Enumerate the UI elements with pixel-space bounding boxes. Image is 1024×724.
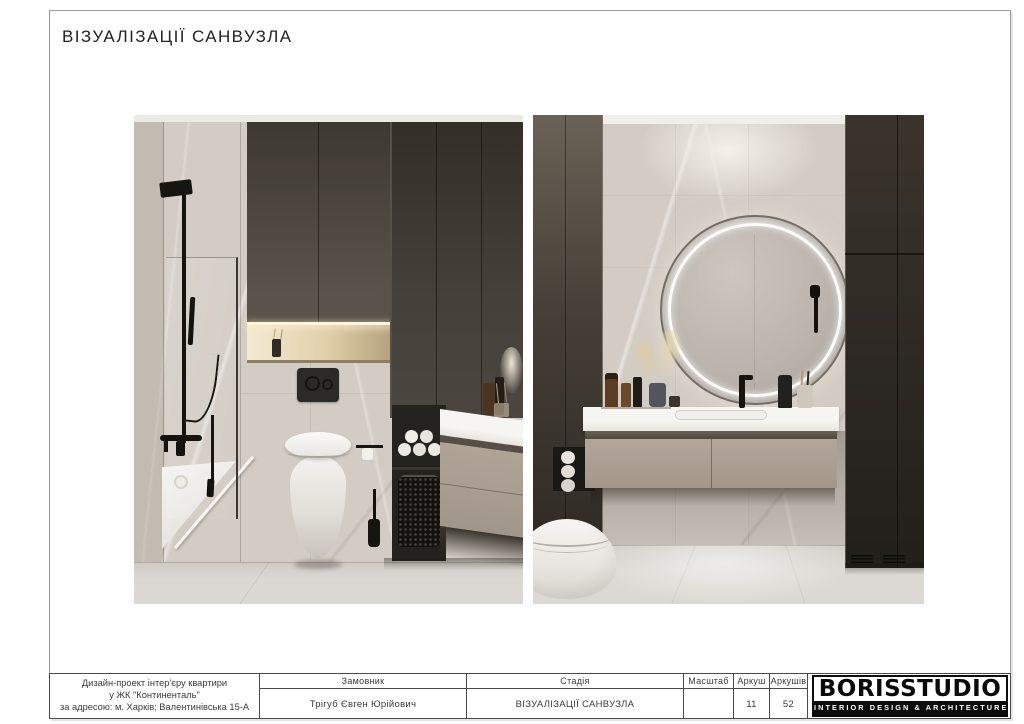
project-description-cell: Дизайн-проект інтер'єру квартири у ЖК "К… bbox=[50, 674, 259, 718]
shower-handle bbox=[207, 479, 215, 497]
studio-logo: BORISSTUDIO INTERIOR DESIGN & ARCHITECTU… bbox=[812, 675, 1008, 717]
wall-hung-toilet bbox=[285, 432, 351, 572]
stage-label: Стадія bbox=[467, 674, 683, 689]
dark-bottle bbox=[778, 375, 792, 408]
project-line-2: у ЖК "Континенталь" bbox=[109, 690, 200, 702]
mirror-reflection-shower bbox=[814, 295, 818, 333]
cabinet-door-seam bbox=[436, 122, 437, 418]
amber-bottle bbox=[605, 373, 618, 408]
scale-label: Масштаб bbox=[684, 674, 733, 689]
toilet-brush-cup bbox=[368, 519, 380, 547]
vent-grille bbox=[851, 555, 873, 563]
tray bbox=[601, 407, 671, 409]
stage-cell: Стадія ВІЗУАЛІЗАЦІЇ САНВУЗЛА bbox=[466, 674, 683, 718]
round-mirror bbox=[660, 215, 850, 405]
vanity bbox=[440, 409, 523, 573]
sheets-total-cell: Аркушів 52 bbox=[769, 674, 807, 718]
scale-cell: Масштаб bbox=[683, 674, 733, 718]
mixer-spout bbox=[164, 441, 168, 452]
bathroom-render-right bbox=[533, 115, 924, 604]
pump-bottle bbox=[633, 377, 642, 408]
toilet-shadow bbox=[294, 560, 342, 569]
sheet-value: 11 bbox=[734, 690, 769, 718]
diffuser-sticks bbox=[496, 383, 507, 404]
tile-joint bbox=[240, 122, 241, 562]
mixer-knob bbox=[176, 441, 185, 456]
vanity-shadow bbox=[591, 488, 835, 506]
floor-light-pool bbox=[593, 545, 853, 604]
tile-joint bbox=[603, 195, 845, 196]
toilet bbox=[533, 511, 617, 603]
client-cell: Замовник Трігуб Євген Юрійович bbox=[259, 674, 466, 718]
client-value: Трігуб Євген Юрійович bbox=[260, 690, 466, 718]
toilet-brush bbox=[373, 489, 376, 521]
sheets-label: Аркушів bbox=[770, 674, 807, 689]
diffuser-jar bbox=[494, 403, 509, 417]
cabinet-door-seam bbox=[318, 122, 319, 322]
flush-button bbox=[305, 376, 320, 391]
vase bbox=[649, 383, 666, 407]
storage-basket bbox=[398, 477, 440, 547]
shelf-divider bbox=[392, 467, 446, 470]
shower-hose bbox=[211, 415, 214, 485]
niche-shelf bbox=[247, 360, 392, 363]
drawer-seam bbox=[711, 439, 712, 488]
ceiling bbox=[134, 115, 523, 122]
sink-basin bbox=[675, 410, 767, 420]
title-block-table: Дизайн-проект інтер'єру квартири у ЖК "К… bbox=[49, 673, 1011, 719]
cabinet-door-seam bbox=[897, 115, 898, 568]
diffuser-bottle bbox=[272, 339, 281, 357]
toothbrushes bbox=[800, 371, 809, 387]
studio-logo-name: BORISSTUDIO bbox=[814, 677, 1006, 701]
mirror-reflection-shower-head bbox=[810, 285, 820, 298]
sheet-label: Аркуш bbox=[734, 674, 769, 689]
floor-shadow bbox=[845, 563, 924, 575]
toilet-bowl bbox=[290, 456, 346, 558]
sheet-number-cell: Аркуш 11 bbox=[733, 674, 769, 718]
project-line-1: Дизайн-проект інтер'єру квартири bbox=[82, 678, 227, 690]
amber-bottle bbox=[621, 383, 631, 408]
led-strip bbox=[247, 322, 392, 325]
vanity-drawers bbox=[440, 442, 523, 538]
stage-value: ВІЗУАЛІЗАЦІЇ САНВУЗЛА bbox=[467, 690, 683, 718]
cabinet-door-seam bbox=[845, 253, 924, 255]
studio-logo-tagline: INTERIOR DESIGN & ARCHITECTURE bbox=[814, 701, 1006, 715]
client-label: Замовник bbox=[260, 674, 466, 689]
project-line-3: за адресою: м. Харків; Валентинівська 15… bbox=[60, 702, 249, 714]
cabinet-door-seam bbox=[565, 115, 566, 571]
bathroom-render-left bbox=[134, 115, 523, 604]
paper-roll bbox=[362, 448, 376, 460]
toilet-seat-seam bbox=[287, 448, 349, 458]
candle-jar bbox=[669, 396, 680, 407]
lit-niche bbox=[247, 322, 392, 362]
page-title: ВІЗУАЛІЗАЦІЇ САНВУЗЛА bbox=[62, 27, 292, 47]
toothbrush-cup bbox=[797, 385, 813, 408]
faucet-spout bbox=[739, 375, 753, 380]
tall-cabinet-right bbox=[845, 115, 924, 568]
vent-grille bbox=[883, 555, 905, 563]
towel-rolls bbox=[561, 451, 575, 464]
sheets-value: 52 bbox=[770, 690, 807, 718]
cabinet-door-seam bbox=[481, 122, 482, 418]
upper-cabinet bbox=[247, 122, 392, 322]
flush-button bbox=[322, 379, 333, 390]
vanity-reveal bbox=[585, 431, 837, 439]
mirror-reflection-joint bbox=[754, 235, 755, 389]
studio-logo-cell: BORISSTUDIO INTERIOR DESIGN & ARCHITECTU… bbox=[807, 674, 1012, 718]
towel-rolls bbox=[398, 443, 411, 456]
scale-value bbox=[684, 690, 733, 718]
